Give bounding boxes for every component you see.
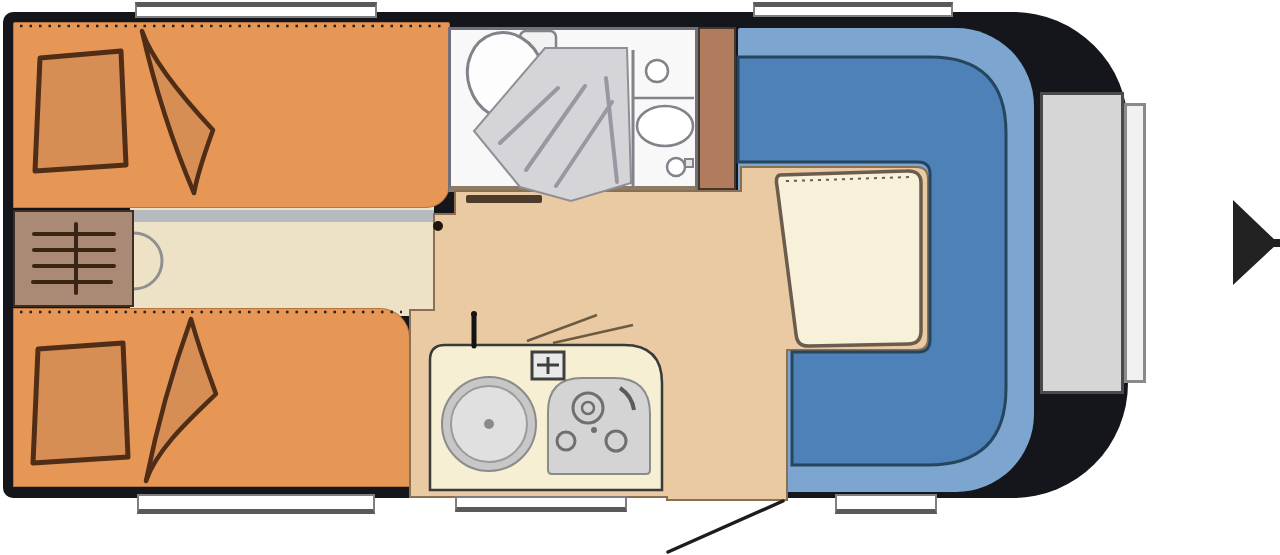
tow-arrow-stem [1266,239,1280,247]
wardrobe [698,27,736,190]
window-under-kitchen [455,496,627,512]
bathroom [448,27,698,192]
heater-cabinet [13,210,134,307]
window-under-lounge [835,494,937,514]
window-under-bottom-bed [137,494,375,514]
front-gas-locker-lid [1124,103,1146,383]
front-lounge-floor [738,28,1034,492]
window-over-lounge-top [753,2,953,17]
aisle-shadow-band [130,210,434,222]
caravan-floor-plan [0,0,1280,555]
entry-door-open-line [668,501,783,552]
window-over-top-bed [135,2,377,18]
single-bed-top [13,22,450,208]
front-gas-locker [1040,92,1124,394]
tow-direction-arrow-icon [1233,200,1278,285]
single-bed-bottom [13,308,410,487]
